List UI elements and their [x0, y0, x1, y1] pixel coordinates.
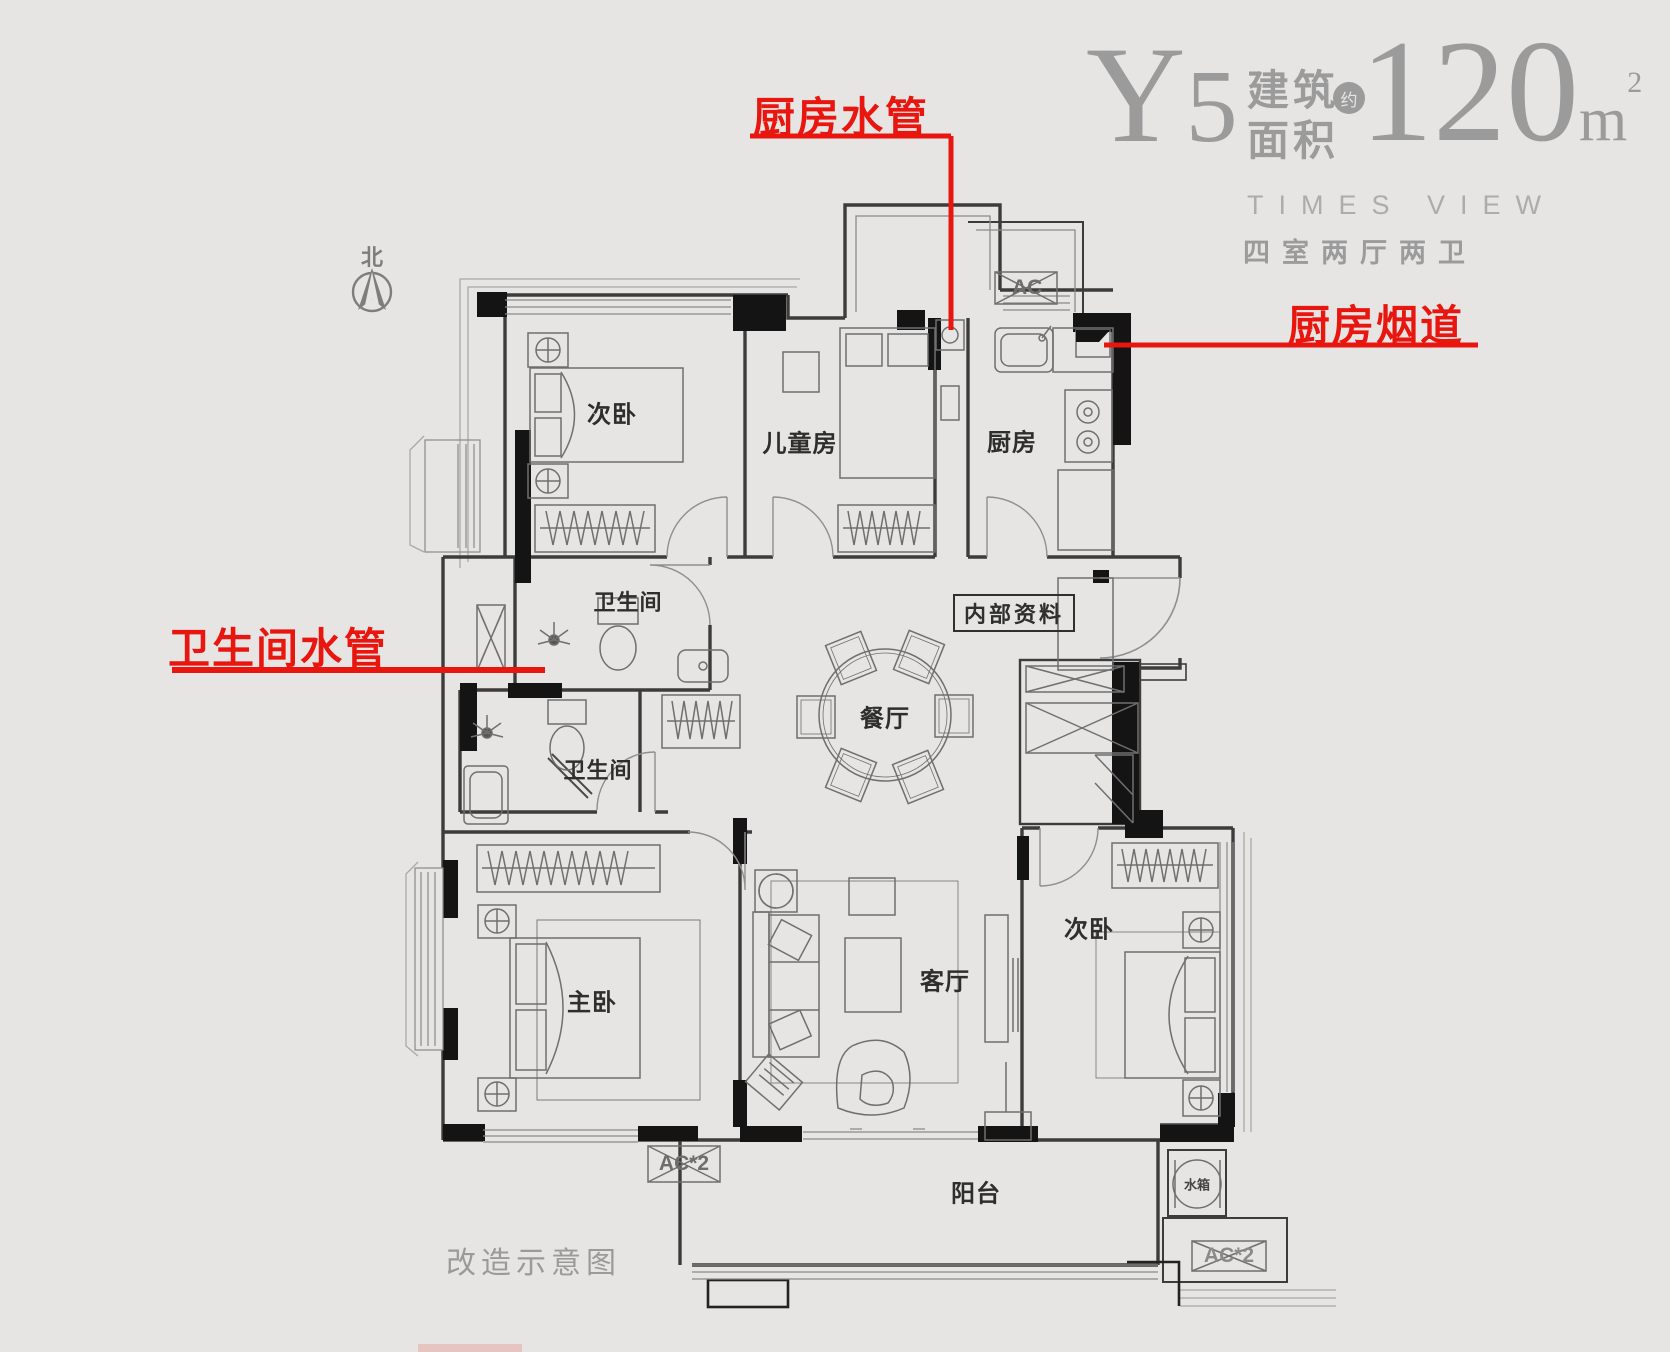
red-watermark-fragment [418, 1344, 522, 1352]
water-tank-label: 水箱 [1184, 1175, 1210, 1194]
exterior-offset-lines [406, 279, 1336, 1306]
room-label-kitchen: 厨房 [987, 423, 1037, 458]
floorplan-page: Y5 建筑 面积 约 120m2 TIMES VIEW 四室两厅两卫 北 厨房水… [0, 0, 1670, 1352]
room-label-bedroom-southeast: 次卧 [1064, 910, 1114, 945]
room-label-dining-room: 餐厅 [860, 699, 910, 734]
unit-code: Y5 [1086, 26, 1238, 164]
ac-panel-west [477, 605, 505, 671]
diagram-caption: 改造示意图 [446, 1238, 621, 1282]
ac2-label-left: AC*2 [659, 1152, 709, 1176]
room-label-bedroom-northwest: 次卧 [587, 395, 637, 430]
north-label: 北 [361, 240, 383, 272]
area-figure: 120m2 [1360, 18, 1642, 164]
room-label-bathroom-lower: 卫生间 [563, 753, 632, 785]
annotation-bathroom-water-pipe: 卫生间水管 [168, 615, 388, 676]
internal-material-stamp: 内部资料 [953, 594, 1075, 632]
subtitle-cn: 四室两厅两卫 [1243, 231, 1477, 270]
ac2-label-right: AC*2 [1204, 1244, 1254, 1268]
room-label-children-room: 儿童房 [763, 424, 838, 459]
wall-columns [443, 292, 1235, 1142]
room-label-living-room: 客厅 [920, 962, 970, 997]
annotation-kitchen-flue: 厨房烟道 [1288, 292, 1464, 353]
north-compass-icon [353, 268, 391, 311]
annotation-kitchen-water-pipe: 厨房水管 [753, 84, 929, 145]
room-label-master-bedroom: 主卧 [567, 983, 617, 1018]
room-label-bathroom-upper: 卫生间 [593, 585, 662, 617]
subtitle-en: TIMES VIEW [1247, 190, 1556, 221]
room-label-balcony: 阳台 [951, 1174, 1001, 1209]
area-label: 建筑 面积 [1247, 66, 1339, 165]
ac-label-top: AC [1026, 276, 1056, 300]
